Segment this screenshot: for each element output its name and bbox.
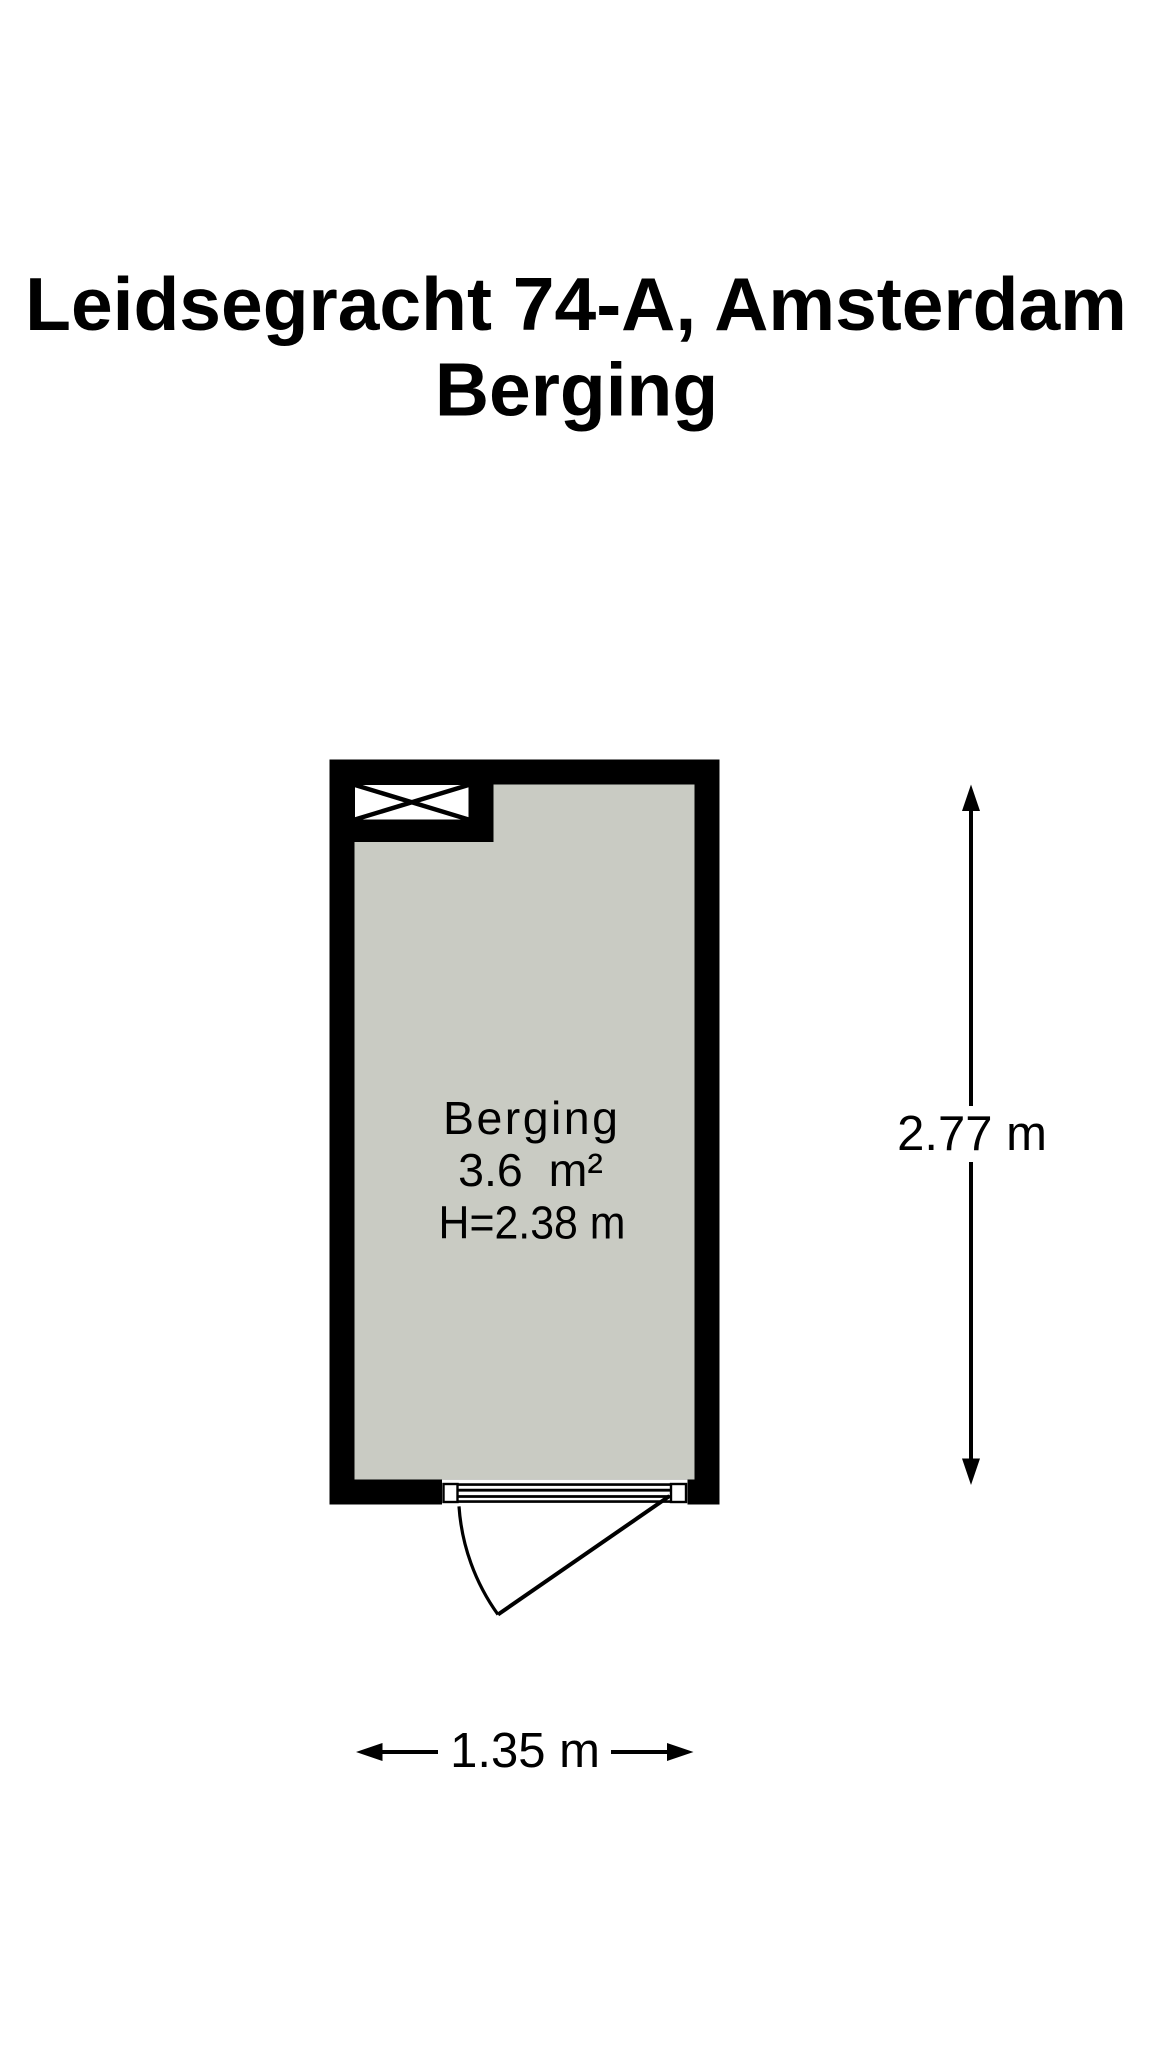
svg-text:Berging: Berging [443,1092,618,1144]
svg-text:2.77 m: 2.77 m [897,1107,1047,1161]
svg-text:Berging: Berging [435,348,718,432]
svg-text:3.6 m²: 3.6 m² [458,1144,603,1196]
svg-text:H=2.38 m: H=2.38 m [439,1197,626,1249]
svg-text:1.35 m: 1.35 m [450,1724,600,1778]
svg-text:Leidsegracht 74-A, Amsterdam: Leidsegracht 74-A, Amsterdam [25,262,1127,346]
